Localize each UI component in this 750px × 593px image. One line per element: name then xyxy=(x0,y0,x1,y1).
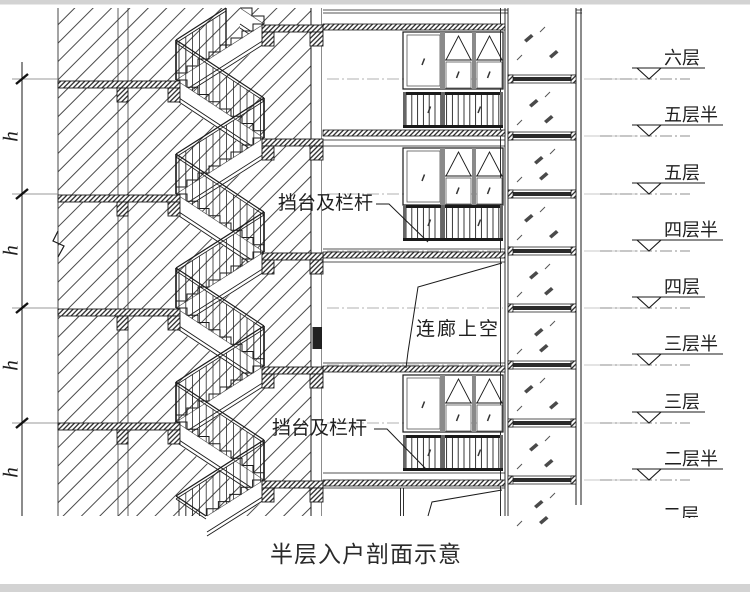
level-label: 二层 xyxy=(663,506,743,518)
glass-facade xyxy=(508,8,581,526)
level-label-clipped: 二层 xyxy=(663,506,743,518)
section-drawing-page: 半层入户剖面示意 挡台及栏杆 挡台及栏杆 连廊上空 h h h h 六层五层半五… xyxy=(0,0,750,593)
corridor-void-label: 连廊上空 xyxy=(416,320,500,339)
railing-label-upper: 挡台及栏杆 xyxy=(278,194,373,213)
level-label: 三层 xyxy=(664,393,700,411)
floor-height-label: h xyxy=(1,236,22,266)
drawing-caption: 半层入户剖面示意 xyxy=(270,543,460,566)
level-label: 四层 xyxy=(664,278,700,296)
level-markers xyxy=(584,68,723,480)
level-label: 五层 xyxy=(664,164,700,182)
level-label: 五层半 xyxy=(664,106,718,124)
section-drawing-lineart xyxy=(0,0,750,593)
floor-height-label: h xyxy=(1,458,22,488)
level-label: 四层半 xyxy=(664,221,718,239)
floor-height-label: h xyxy=(1,122,22,152)
floor-height-label: h xyxy=(1,351,22,381)
level-label: 六层 xyxy=(664,49,700,67)
railing-label-lower: 挡台及栏杆 xyxy=(272,419,367,438)
level-label: 二层半 xyxy=(664,450,718,468)
level-label: 三层半 xyxy=(664,335,718,353)
